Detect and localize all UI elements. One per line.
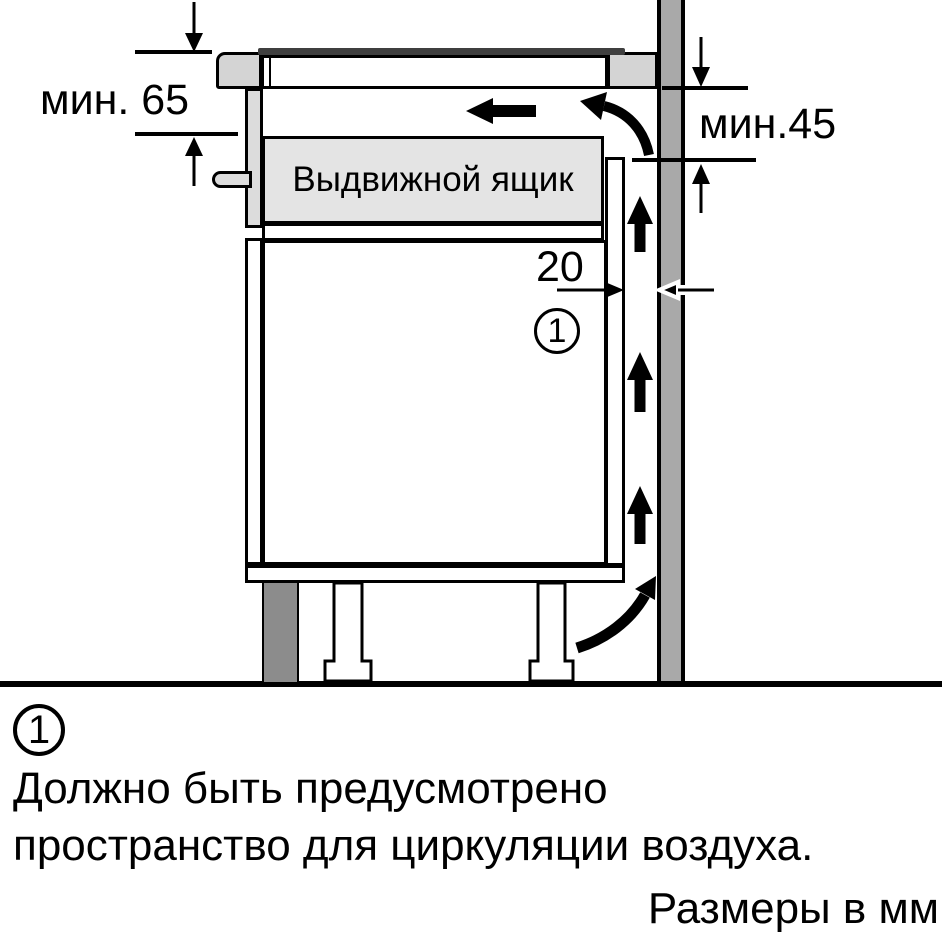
footnote-1-badge: 1 <box>13 704 65 756</box>
under-drawer-rail <box>262 223 604 241</box>
floor-line <box>0 681 942 687</box>
up-arrow-icon <box>692 164 710 184</box>
drawer-label: Выдвижной ящик <box>292 160 573 200</box>
footnote-text-line1: Должно быть предусмотрено <box>13 764 608 814</box>
worktop-right-section <box>607 52 658 89</box>
footnote-text-line2: пространство для циркуляции воздуха. <box>13 821 813 871</box>
cabinet-front-panel <box>245 238 263 565</box>
cabinet-rear-panel <box>605 157 625 566</box>
hob-body <box>261 55 608 89</box>
callout-1-number: 1 <box>548 312 567 351</box>
dimension-min45-label: мин.45 <box>699 100 836 149</box>
down-arrow-icon <box>185 33 203 52</box>
dimension-min65-label: мин. 65 <box>40 76 189 125</box>
callout-1-badge: 1 <box>534 308 580 354</box>
down-arrow-icon <box>692 67 710 87</box>
hob-inner-edge-line <box>269 57 271 87</box>
drawer-box: Выдвижной ящик <box>262 136 604 224</box>
plinth-panel <box>262 583 299 682</box>
airflow-up-arrow <box>627 352 653 412</box>
cabinet-leg-right <box>530 583 573 681</box>
dimension-gap20-label: 20 <box>536 243 584 292</box>
hob-glass-surface <box>258 48 625 55</box>
airflow-left-arrow <box>466 98 536 124</box>
up-arrow-icon <box>185 137 203 156</box>
drawer-front-panel <box>245 88 263 228</box>
airflow-up-arrow <box>627 196 653 252</box>
cabinet-leg-left <box>325 583 371 681</box>
footnote-1-number: 1 <box>28 708 50 753</box>
airflow-curve-bottom-arrow <box>577 576 656 648</box>
wall-section <box>657 0 685 682</box>
units-caption: Размеры в мм <box>648 884 939 934</box>
installation-diagram: Выдвижной ящик <box>0 0 942 936</box>
drawer-handle-knob <box>212 171 252 188</box>
airflow-up-arrow <box>627 486 653 544</box>
cabinet-bottom-panel <box>245 565 625 583</box>
worktop-left-section <box>216 52 262 89</box>
